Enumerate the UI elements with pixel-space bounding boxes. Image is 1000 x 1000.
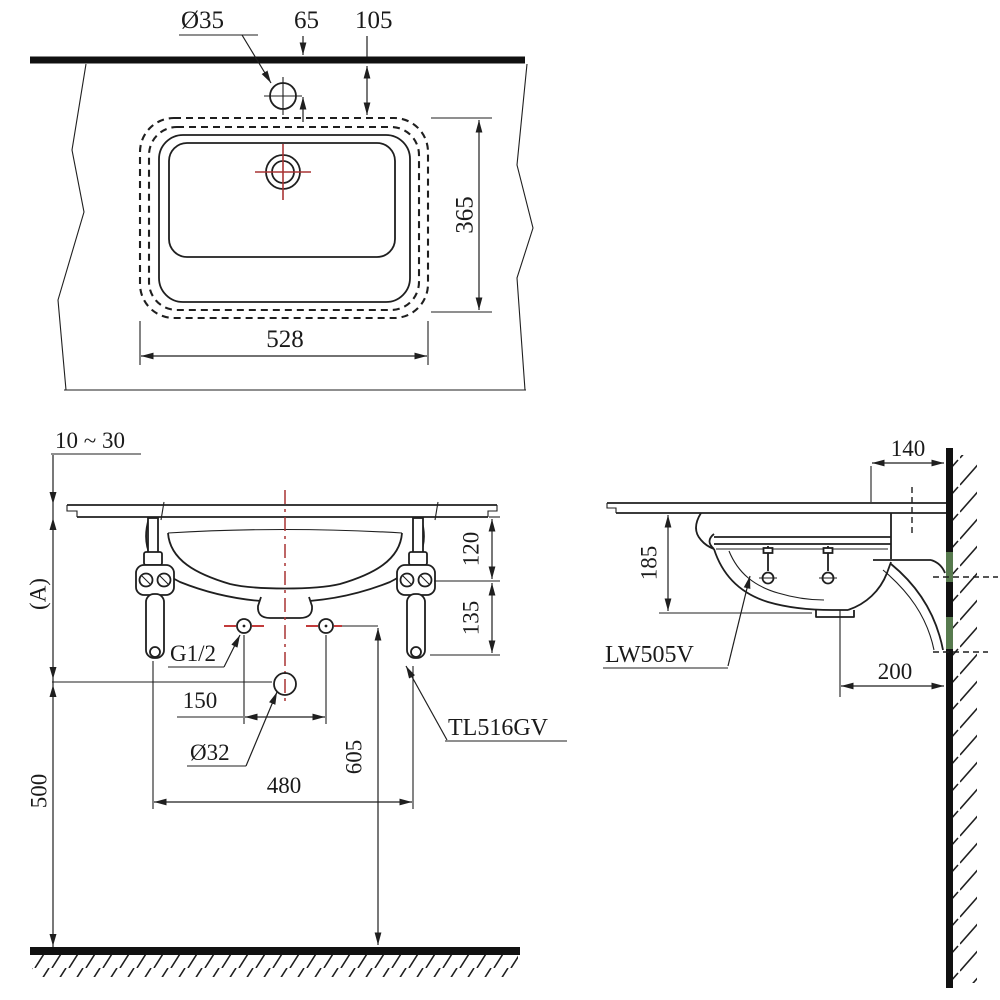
supply-hole-right [306, 619, 342, 633]
cutout-line-outer [140, 118, 428, 318]
faucet-hole-plan [264, 77, 302, 115]
basin-rim-plan [159, 135, 410, 302]
countertop-front [67, 502, 497, 520]
dim-height-ref: (A) [25, 578, 50, 610]
dim-bracket-pitch: 480 [267, 773, 302, 798]
label-faucet-model: TL516GV [448, 715, 549, 741]
front-view: G1/2 150 Ø32 480 605 10 ~ 30 (A) 500 [25, 428, 567, 977]
dim-cutout-depth: 365 [452, 196, 479, 234]
basin-side [696, 513, 945, 650]
lavatory-installation-drawing: Ø35 65 105 365 528 [0, 0, 1000, 1000]
dim-counter-thickness: 10 ~ 30 [55, 428, 125, 453]
wall-mark-lower [946, 617, 953, 649]
supply-hole-left [224, 619, 264, 633]
label-basin-model: LW505V [605, 642, 695, 668]
dim-drain-to-wall: 200 [878, 659, 913, 684]
dim-rim-to-bolt: 120 [458, 532, 483, 567]
leader-drain-dia [246, 692, 277, 766]
break-line-left [58, 64, 86, 390]
dim-supply-height: 605 [341, 740, 366, 775]
floor [30, 947, 520, 977]
dim-supply-pitch: 150 [183, 688, 218, 713]
leader-supply-thread [224, 635, 240, 667]
dim-bolt-to-bracket: 135 [458, 601, 483, 636]
drain-outlet-side [816, 610, 854, 617]
dim-cutout-width: 528 [266, 326, 304, 353]
dim-depth-below-counter: 185 [636, 546, 661, 581]
dim-drain-height: 500 [26, 774, 51, 809]
hanger-bolt-rear [819, 546, 837, 584]
dim-wall-to-hole: 140 [891, 436, 926, 461]
rear-curve-inner [883, 570, 934, 650]
basin-bowl-plan [169, 143, 395, 257]
dim-faucet-hole-dia: Ø35 [181, 7, 224, 34]
leader-faucet-model [406, 666, 447, 740]
label-supply-thread: G1/2 [170, 641, 216, 666]
top-view-plan: Ø35 65 105 365 528 [30, 7, 533, 390]
wall-line-side [946, 448, 953, 988]
dim-cutout-to-wall: 105 [355, 7, 393, 34]
wall-hatching [953, 455, 977, 983]
leader-basin-model [728, 576, 750, 666]
bracket-right [397, 518, 435, 658]
technical-drawing-page: Ø35 65 105 365 528 [0, 0, 1000, 1000]
break-line-right [517, 64, 533, 390]
label-drain-dia: Ø32 [190, 740, 230, 765]
drain-hole-plan [255, 144, 311, 200]
dim-hole-to-wall: 65 [294, 7, 319, 34]
side-view: 140 [603, 436, 998, 988]
countertop-side [607, 487, 946, 536]
hanger-bolt-front [759, 546, 777, 584]
